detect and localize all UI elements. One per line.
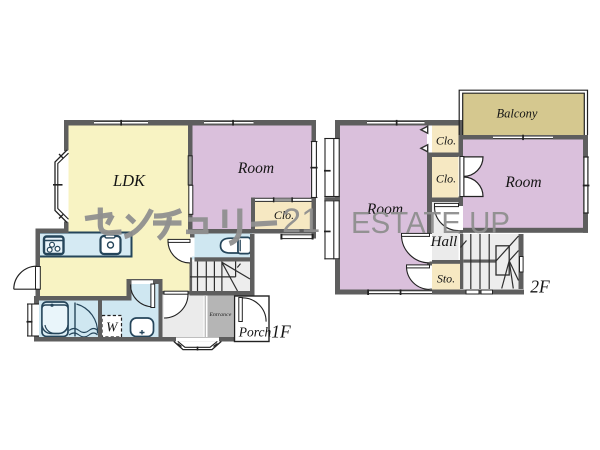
svg-text:Balcony: Balcony: [497, 107, 538, 121]
svg-text:Sto.: Sto.: [437, 272, 455, 286]
svg-text:ESTATE UP: ESTATE UP: [351, 206, 510, 240]
svg-text:2F: 2F: [530, 277, 550, 297]
svg-text:Room: Room: [237, 160, 274, 177]
svg-text:Entrance: Entrance: [208, 312, 231, 318]
svg-text:LDK: LDK: [112, 171, 146, 190]
svg-text:1F: 1F: [271, 322, 291, 342]
svg-text:W: W: [106, 320, 119, 335]
svg-text:Clo.: Clo.: [436, 172, 456, 186]
svg-text:21: 21: [282, 202, 320, 240]
svg-text:Clo.: Clo.: [436, 134, 456, 148]
svg-text:Room: Room: [504, 174, 541, 191]
svg-text:Porch: Porch: [238, 325, 272, 340]
